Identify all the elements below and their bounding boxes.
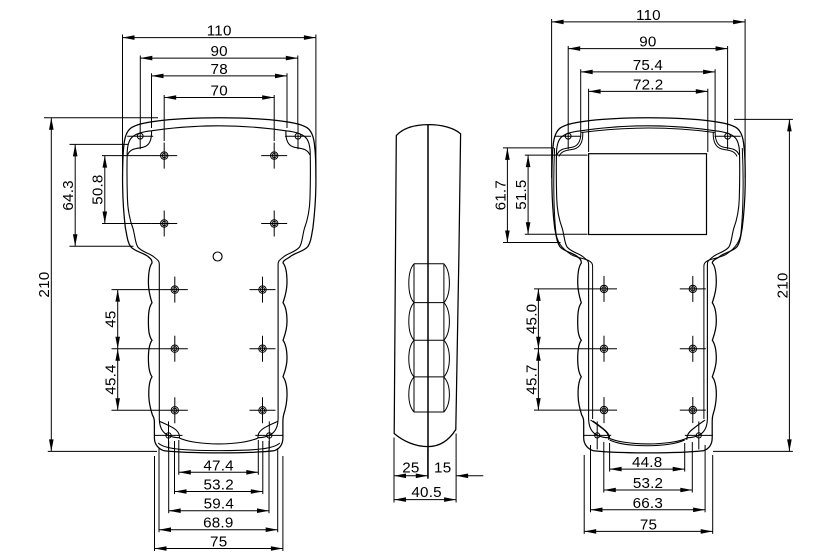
svg-text:72.2: 72.2 <box>633 76 663 93</box>
svg-text:44.8: 44.8 <box>632 454 662 471</box>
svg-text:64.3: 64.3 <box>60 180 77 210</box>
svg-text:70: 70 <box>211 83 228 100</box>
svg-text:50.8: 50.8 <box>90 174 107 204</box>
svg-text:75.4: 75.4 <box>633 57 663 74</box>
svg-text:75: 75 <box>640 516 657 533</box>
svg-text:61.7: 61.7 <box>492 180 509 210</box>
svg-text:47.4: 47.4 <box>203 457 233 474</box>
svg-text:53.2: 53.2 <box>204 477 234 494</box>
svg-text:75: 75 <box>210 534 227 551</box>
svg-text:68.9: 68.9 <box>203 515 233 532</box>
svg-text:53.2: 53.2 <box>633 475 663 492</box>
svg-text:15: 15 <box>434 460 451 477</box>
svg-text:210: 210 <box>774 272 791 298</box>
svg-text:51.5: 51.5 <box>513 179 530 209</box>
svg-text:110: 110 <box>636 7 661 24</box>
svg-text:210: 210 <box>36 272 53 298</box>
svg-text:45.7: 45.7 <box>523 364 540 394</box>
svg-text:45: 45 <box>103 310 120 327</box>
svg-text:40.5: 40.5 <box>411 484 441 501</box>
svg-text:25: 25 <box>402 460 419 477</box>
svg-text:59.4: 59.4 <box>204 496 234 513</box>
svg-text:90: 90 <box>639 34 656 51</box>
svg-text:45.0: 45.0 <box>523 304 540 334</box>
svg-text:66.3: 66.3 <box>633 495 663 512</box>
svg-text:90: 90 <box>210 43 227 60</box>
svg-text:110: 110 <box>207 23 232 40</box>
svg-text:45.4: 45.4 <box>103 364 120 394</box>
svg-text:78: 78 <box>211 61 228 78</box>
